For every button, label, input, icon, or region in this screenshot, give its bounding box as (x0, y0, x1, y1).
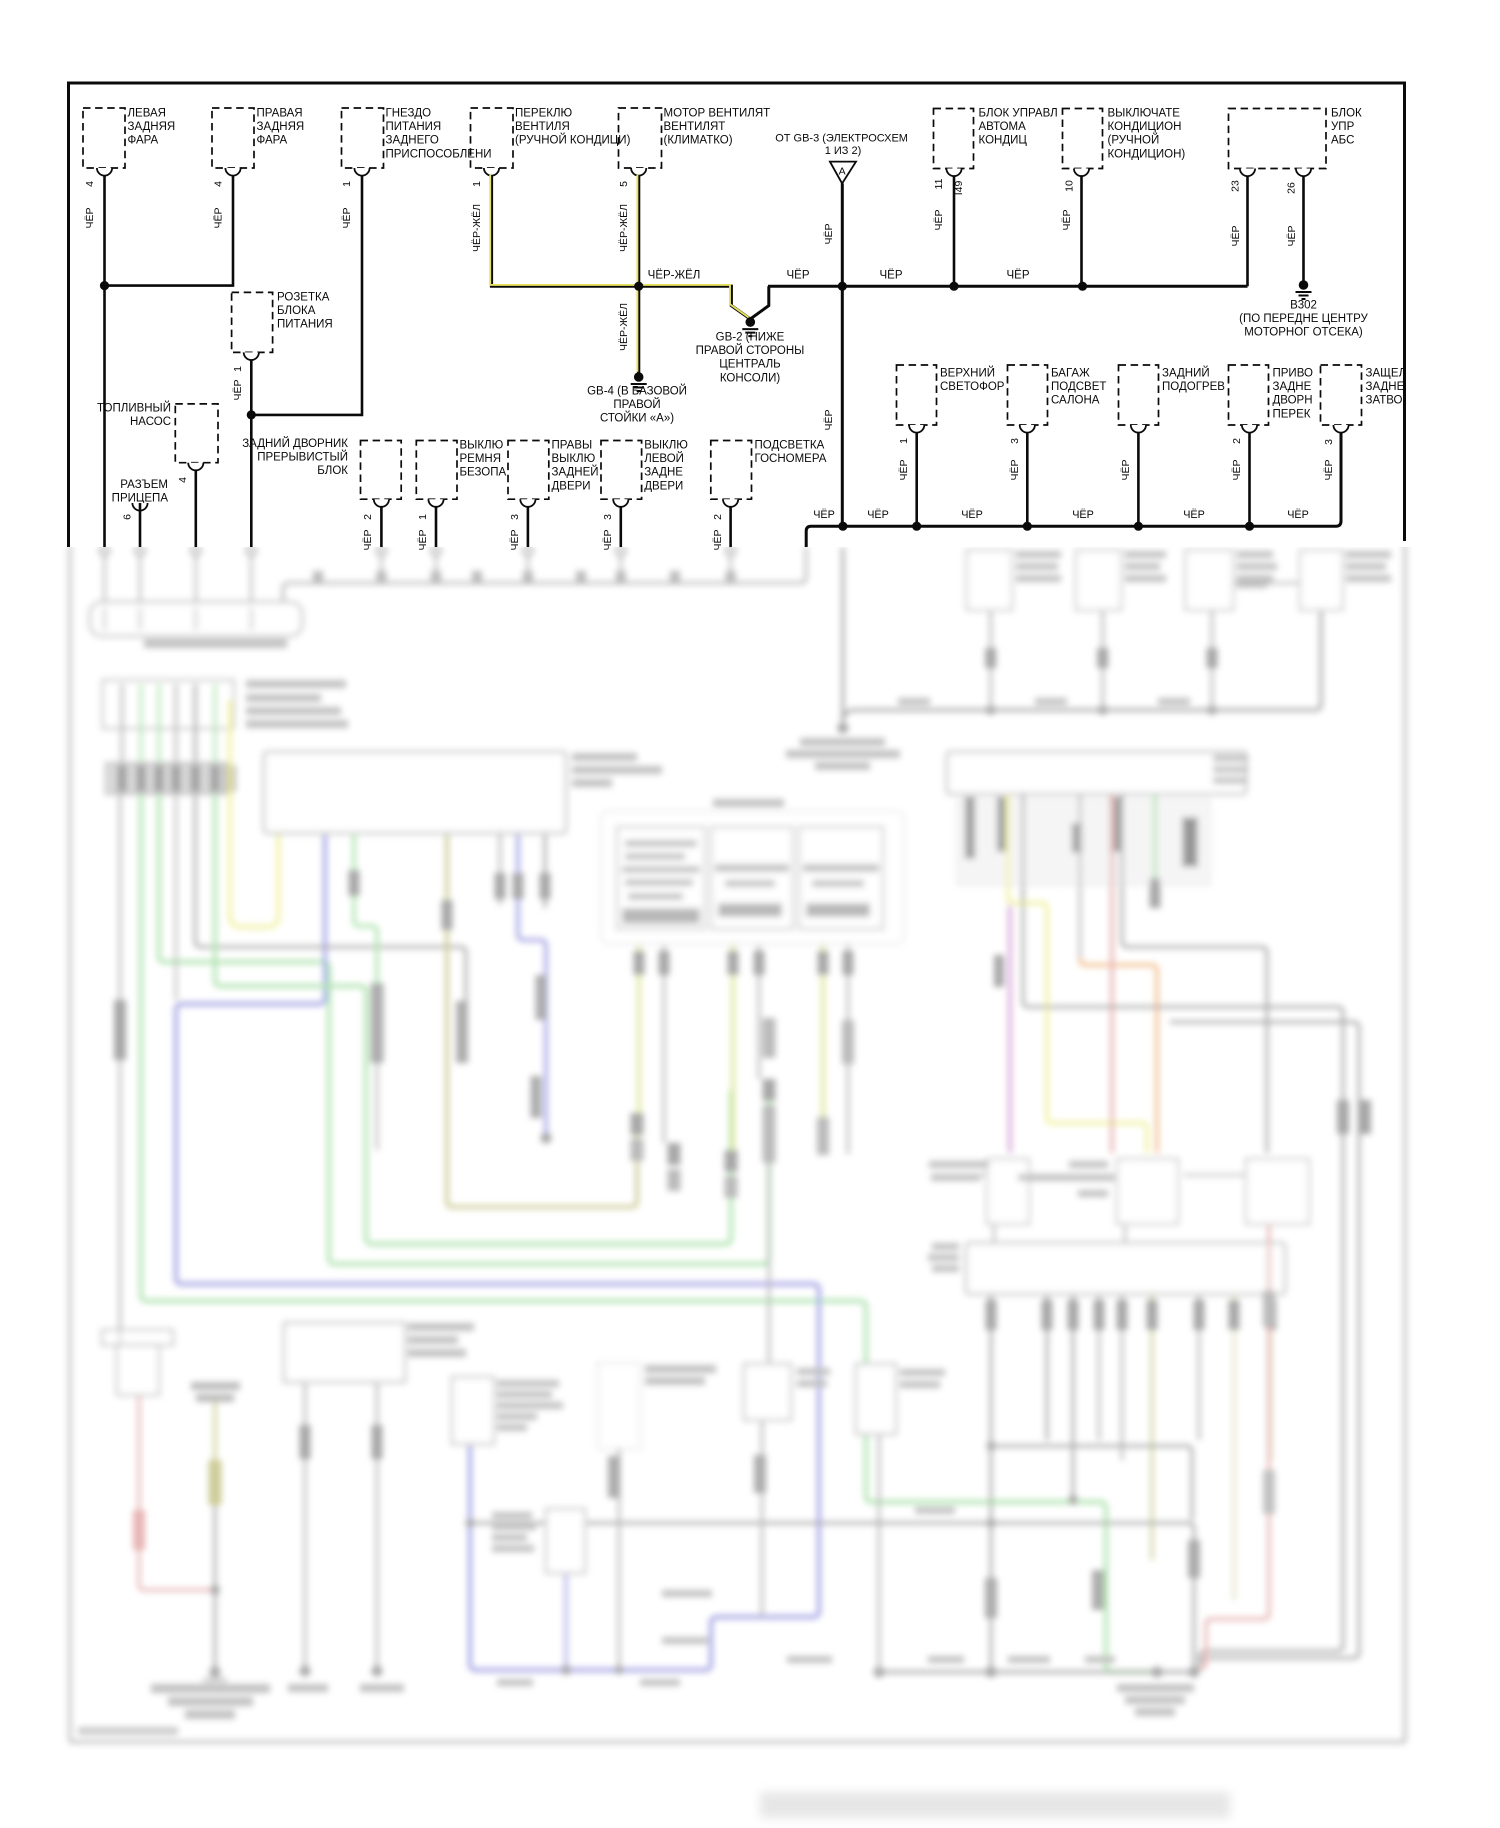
svg-text:ПРАВЫ: ПРАВЫ (552, 440, 593, 452)
svg-text:ЧЁР: ЧЁР (509, 529, 521, 550)
svg-text:ЧЁР: ЧЁР (1323, 459, 1335, 480)
svg-text:ЧЁР: ЧЁР (213, 207, 225, 228)
svg-text:3: 3 (1009, 438, 1021, 444)
svg-text:ПРЕРЫВИСТЫЙ: ПРЕРЫВИСТЫЙ (257, 451, 348, 464)
svg-text:ЧЁР: ЧЁР (786, 270, 809, 282)
svg-text:ВЫКЛЮ: ВЫКЛЮ (552, 453, 596, 465)
svg-text:ТОПЛИВНЫЙ: ТОПЛИВНЫЙ (97, 402, 171, 415)
svg-text:РОЗЕТКА: РОЗЕТКА (277, 292, 330, 304)
svg-text:ЗАДНЕЙ: ЗАДНЕЙ (552, 466, 599, 479)
svg-text:4: 4 (177, 477, 189, 483)
svg-text:ЗАДНЯЯ: ЗАДНЯЯ (128, 121, 176, 133)
svg-text:ДВЕРИ: ДВЕРИ (552, 480, 591, 492)
svg-text:ЧЁР-ЖЁЛ: ЧЁР-ЖЁЛ (471, 204, 483, 252)
svg-text:ЧЁР: ЧЁР (712, 529, 724, 550)
svg-text:ПРАВОЙ СТОРОНЫ: ПРАВОЙ СТОРОНЫ (696, 344, 805, 357)
svg-text:ВЫКЛЮ: ВЫКЛЮ (644, 440, 688, 452)
svg-text:МОТОР ВЕНТИЛЯТ: МОТОР ВЕНТИЛЯТ (664, 108, 771, 120)
svg-text:1: 1 (471, 181, 483, 187)
svg-text:ЧЁР: ЧЁР (417, 529, 429, 550)
svg-text:ФАРА: ФАРА (257, 135, 288, 147)
svg-text:ПИТАНИЯ: ПИТАНИЯ (386, 121, 442, 133)
svg-text:ПОДОГРЕВ: ПОДОГРЕВ (1162, 381, 1225, 393)
svg-text:БЕЗОПА: БЕЗОПА (460, 467, 507, 479)
svg-text:GB-2 (НИЖЕ: GB-2 (НИЖЕ (716, 332, 785, 344)
svg-text:ПРАВАЯ: ПРАВАЯ (257, 108, 303, 120)
svg-text:ПОДСВЕТ: ПОДСВЕТ (1051, 381, 1106, 393)
svg-text:ЧЁР: ЧЁР (1009, 459, 1021, 480)
svg-text:2: 2 (1231, 438, 1243, 444)
svg-text:ВЕНТИЛЯТ: ВЕНТИЛЯТ (664, 121, 726, 133)
svg-text:БЛОКА: БЛОКА (277, 305, 316, 317)
svg-text:1 ИЗ 2): 1 ИЗ 2) (825, 145, 862, 157)
svg-text:ПРИСПОСОБЛЕНИ: ПРИСПОСОБЛЕНИ (386, 148, 492, 160)
svg-text:ЗАЩЕЛ: ЗАЩЕЛ (1366, 368, 1407, 380)
svg-text:ЗАТВО: ЗАТВО (1366, 395, 1403, 407)
svg-text:КОНДИЦ: КОНДИЦ (979, 135, 1028, 147)
svg-text:10: 10 (1064, 180, 1076, 192)
svg-text:B302: B302 (1290, 300, 1317, 312)
svg-text:I49: I49 (953, 181, 965, 196)
svg-text:ЗАДНЕ: ЗАДНЕ (1366, 381, 1405, 393)
svg-text:5: 5 (618, 181, 630, 187)
svg-text:1: 1 (341, 181, 353, 187)
svg-text:АВТОМА: АВТОМА (979, 121, 1027, 133)
svg-text:ФАРА: ФАРА (128, 135, 159, 147)
svg-text:УПР: УПР (1331, 121, 1355, 133)
svg-text:ЛЕВОЙ: ЛЕВОЙ (644, 452, 684, 465)
svg-text:ЧЁР: ЧЁР (1231, 459, 1243, 480)
svg-text:ЗАДНЯЯ: ЗАДНЯЯ (257, 121, 305, 133)
svg-text:ВЫКЛЮЧАТЕ: ВЫКЛЮЧАТЕ (1108, 108, 1181, 120)
svg-text:ВЫКЛЮ: ВЫКЛЮ (460, 440, 504, 452)
svg-text:ОТ GB-3 (ЭЛЕКТРОСХЕМ: ОТ GB-3 (ЭЛЕКТРОСХЕМ (775, 132, 908, 144)
svg-text:КОНДИЦИОН): КОНДИЦИОН) (1108, 148, 1186, 160)
svg-text:ЧЁР: ЧЁР (232, 379, 244, 400)
svg-text:ЧЁР: ЧЁР (602, 529, 614, 550)
svg-text:ПРИЦЕПА: ПРИЦЕПА (112, 493, 169, 505)
svg-text:(КЛИМАТКО): (КЛИМАТКО) (664, 135, 733, 147)
svg-text:ПРАВОЙ: ПРАВОЙ (613, 398, 660, 411)
svg-text:ЧЁР: ЧЁР (1286, 225, 1298, 246)
svg-text:ЧЁР: ЧЁР (898, 459, 910, 480)
svg-text:4: 4 (84, 181, 96, 187)
svg-text:НАСОС: НАСОС (130, 416, 171, 428)
svg-text:РАЗЪЕМ: РАЗЪЕМ (120, 479, 168, 491)
svg-text:ЗАДНИЙ ДВОРНИК: ЗАДНИЙ ДВОРНИК (242, 437, 348, 450)
svg-text:4: 4 (213, 181, 225, 187)
svg-text:ЧЁР-ЖЁЛ: ЧЁР-ЖЁЛ (618, 303, 630, 351)
svg-text:ЧЁР: ЧЁР (84, 207, 96, 228)
svg-text:СВЕТОФОР: СВЕТОФОР (940, 381, 1005, 393)
svg-text:3: 3 (509, 514, 521, 520)
svg-text:ЧЁР: ЧЁР (1183, 509, 1205, 521)
svg-text:ЗАДНЕГО: ЗАДНЕГО (386, 135, 439, 147)
svg-text:1: 1 (232, 366, 244, 372)
svg-text:КОНСОЛИ): КОНСОЛИ) (720, 372, 781, 384)
svg-text:3: 3 (602, 514, 614, 520)
svg-text:2: 2 (362, 514, 374, 520)
svg-text:САЛОНА: САЛОНА (1051, 395, 1100, 407)
svg-text:ЧЁР: ЧЁР (1230, 225, 1242, 246)
svg-text:(РУЧНОЙ: (РУЧНОЙ (1108, 134, 1160, 147)
svg-text:23: 23 (1230, 180, 1242, 192)
svg-text:КОНДИЦИОН: КОНДИЦИОН (1108, 121, 1182, 133)
svg-text:БЛОК: БЛОК (1331, 108, 1362, 120)
svg-text:ГОСНОМЕРА: ГОСНОМЕРА (755, 453, 827, 465)
svg-text:ВЕРХНИЙ: ВЕРХНИЙ (940, 367, 995, 380)
svg-text:ЧЁР-ЖЁЛ: ЧЁР-ЖЁЛ (648, 270, 701, 282)
svg-text:ПЕРЕКЛЮ: ПЕРЕКЛЮ (515, 108, 573, 120)
svg-text:А: А (839, 165, 846, 177)
svg-text:1: 1 (417, 514, 429, 520)
svg-text:ГНЕЗДО: ГНЕЗДО (386, 108, 432, 120)
svg-text:2: 2 (712, 514, 724, 520)
svg-text:ЗАДНЕ: ЗАДНЕ (1273, 381, 1312, 393)
svg-text:ЧЁР: ЧЁР (1120, 459, 1132, 480)
svg-text:ЧЁР: ЧЁР (341, 207, 353, 228)
svg-text:ЧЁР: ЧЁР (1287, 509, 1309, 521)
svg-text:ПЕРЕК: ПЕРЕК (1273, 408, 1311, 420)
svg-text:БЛОК УПРАВЛ: БЛОК УПРАВЛ (979, 108, 1058, 120)
svg-text:ЧЁР: ЧЁР (813, 509, 835, 521)
svg-text:3: 3 (1323, 439, 1335, 445)
svg-text:ПРИВО: ПРИВО (1273, 368, 1313, 380)
svg-text:БАГАЖ: БАГАЖ (1051, 368, 1090, 380)
svg-text:(РУЧНОЙ КОНДИЦИ): (РУЧНОЙ КОНДИЦИ) (515, 134, 631, 147)
svg-text:ЧЁР: ЧЁР (879, 270, 902, 282)
svg-text:ЛЕВАЯ: ЛЕВАЯ (128, 108, 166, 120)
svg-text:ЧЁР: ЧЁР (867, 509, 889, 521)
svg-text:ДВОРН: ДВОРН (1273, 395, 1313, 407)
svg-text:ПИТАНИЯ: ПИТАНИЯ (277, 319, 333, 331)
svg-text:ЧЁР: ЧЁР (823, 409, 835, 430)
svg-text:ПОДСВЕТКА: ПОДСВЕТКА (755, 440, 825, 452)
svg-text:ЧЁР: ЧЁР (1061, 209, 1073, 230)
svg-text:ЧЁР: ЧЁР (961, 509, 983, 521)
svg-text:БЛОК: БЛОК (317, 465, 348, 477)
svg-text:(ПО ПЕРЕДНЕ ЦЕНТРУ: (ПО ПЕРЕДНЕ ЦЕНТРУ (1239, 313, 1368, 325)
svg-text:ЗАДНИЙ: ЗАДНИЙ (1162, 367, 1210, 380)
svg-text:ЧЁР-ЖЁЛ: ЧЁР-ЖЁЛ (618, 204, 630, 252)
svg-text:GB-4 (В БАЗОВОЙ: GB-4 (В БАЗОВОЙ (587, 385, 687, 398)
svg-text:МОТОРНОГ ОТСЕКА): МОТОРНОГ ОТСЕКА) (1244, 327, 1363, 339)
svg-text:ЧЁР: ЧЁР (1072, 509, 1094, 521)
svg-text:ЦЕНТРАЛЬ: ЦЕНТРАЛЬ (719, 359, 780, 371)
svg-text:26: 26 (1286, 182, 1298, 194)
svg-text:ДВЕРИ: ДВЕРИ (644, 480, 683, 492)
svg-text:ЧЁР: ЧЁР (823, 223, 835, 244)
svg-text:ЧЁР: ЧЁР (362, 529, 374, 550)
svg-text:ЧЁР: ЧЁР (933, 209, 945, 230)
svg-text:ЗАДНЕ: ЗАДНЕ (644, 467, 683, 479)
svg-text:1: 1 (898, 438, 910, 444)
svg-text:11: 11 (933, 178, 945, 189)
svg-text:6: 6 (122, 514, 134, 520)
svg-text:СТОЙКИ «А»): СТОЙКИ «А») (600, 412, 674, 425)
svg-text:АБС: АБС (1331, 135, 1354, 147)
svg-text:ВЕНТИЛЯ: ВЕНТИЛЯ (515, 121, 570, 133)
svg-text:ЧЁР: ЧЁР (1006, 270, 1029, 282)
svg-text:РЕМНЯ: РЕМНЯ (460, 453, 502, 465)
